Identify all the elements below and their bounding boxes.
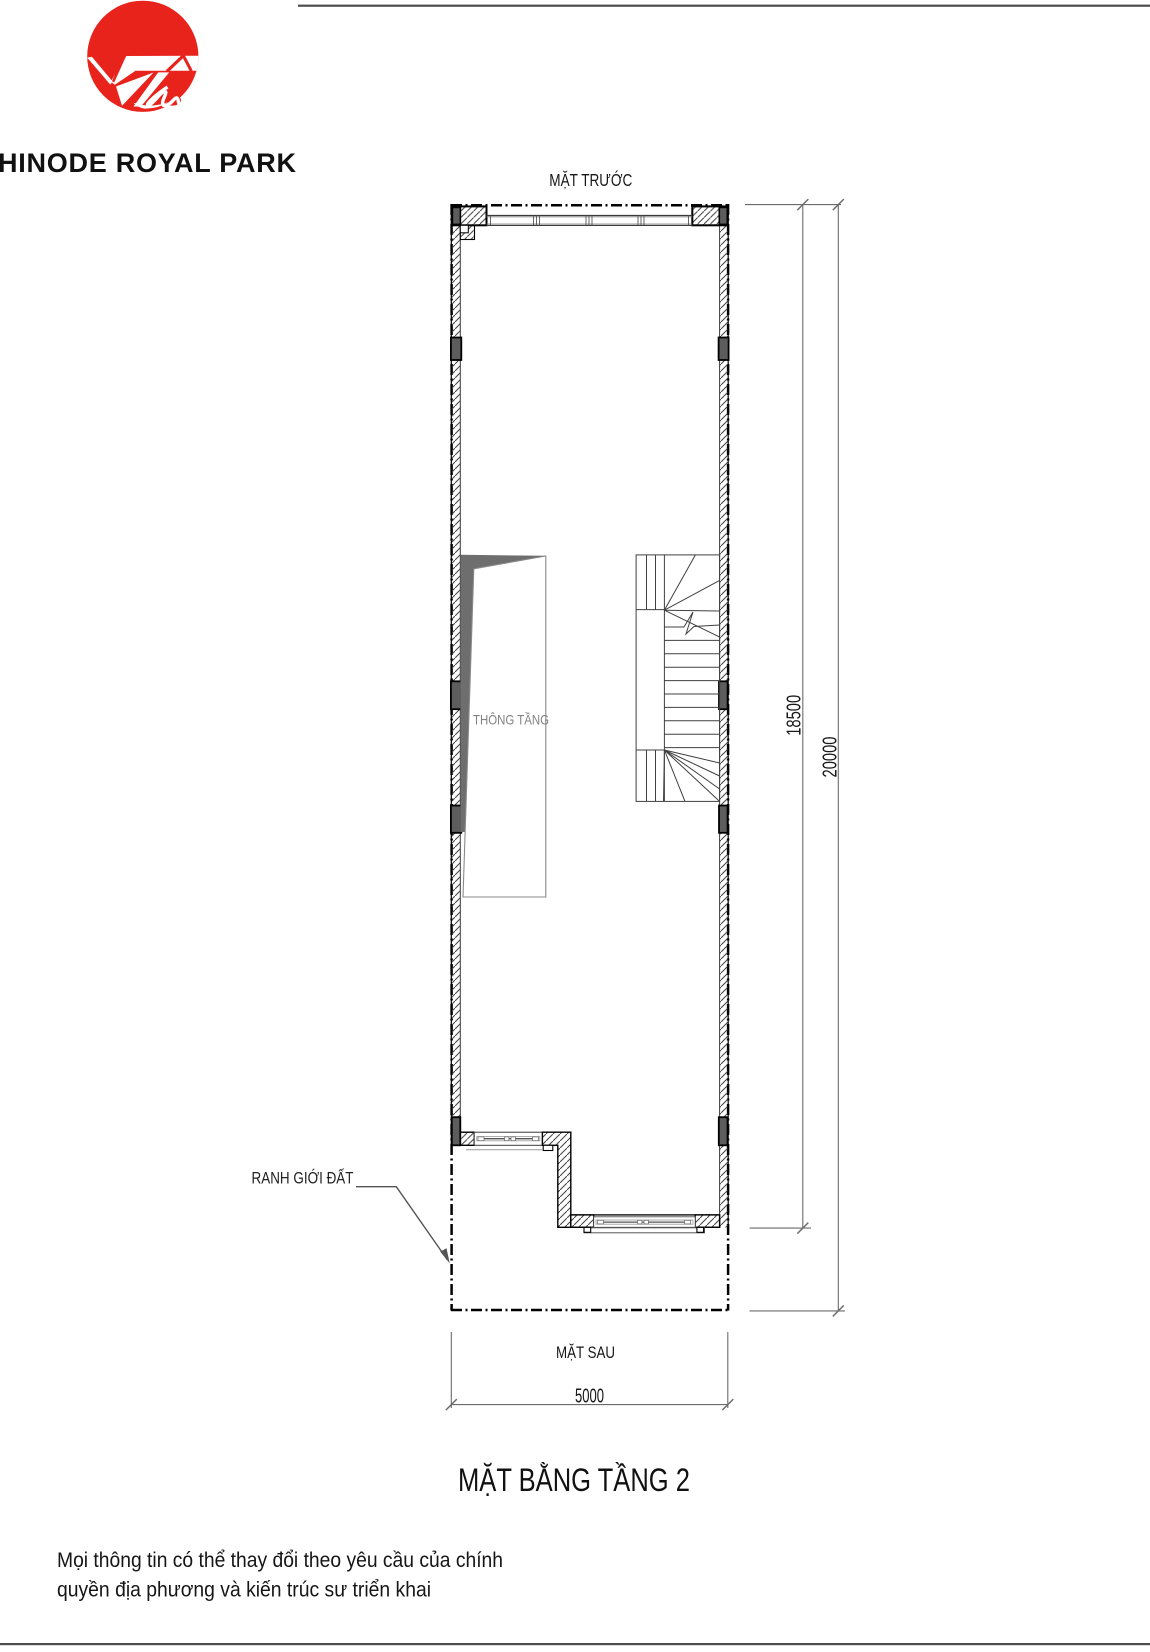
svg-text:RANH GIỚI ĐẤT: RANH GIỚI ĐẤT bbox=[252, 1168, 354, 1187]
svg-text:MẶT BẰNG TẦNG 2: MẶT BẰNG TẦNG 2 bbox=[458, 1462, 690, 1498]
svg-text:18500: 18500 bbox=[783, 695, 806, 736]
svg-text:THÔNG TẦNG: THÔNG TẦNG bbox=[473, 712, 549, 728]
svg-text:20000: 20000 bbox=[818, 737, 841, 778]
svg-text:Mọi thông tin có thể thay đổi: Mọi thông tin có thể thay đổi theo yêu c… bbox=[57, 1549, 503, 1572]
svg-text:MẶT TRƯỚC: MẶT TRƯỚC bbox=[549, 169, 632, 190]
svg-text:5000: 5000 bbox=[575, 1385, 604, 1408]
svg-text:quyền địa phương và kiến trúc: quyền địa phương và kiến trúc sư triển k… bbox=[57, 1579, 431, 1602]
svg-text:MẶT SAU: MẶT SAU bbox=[556, 1343, 615, 1362]
svg-text:HINODE ROYAL PARK: HINODE ROYAL PARK bbox=[0, 148, 297, 178]
